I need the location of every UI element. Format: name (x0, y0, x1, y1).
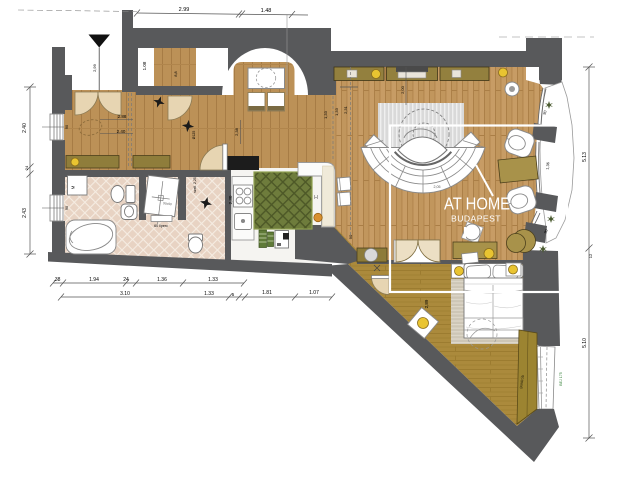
svg-text:1,36: 1,36 (546, 162, 551, 170)
svg-text:2.40: 2.40 (117, 129, 126, 134)
svg-text:.38: .38 (54, 277, 61, 283)
svg-text:AT HOME: AT HOME (444, 194, 510, 214)
svg-text:2,05: 2,05 (434, 185, 441, 189)
svg-text:2,99: 2,99 (92, 63, 97, 72)
svg-text:8,8: 8,8 (174, 71, 178, 76)
svg-text:2,31: 2,31 (343, 105, 348, 114)
svg-text:2,30: 2,30 (228, 195, 233, 204)
svg-text:M: M (71, 185, 76, 189)
svg-text:2.99: 2.99 (179, 7, 190, 13)
svg-text:2.88: 2.88 (118, 114, 127, 119)
svg-text:90: 90 (65, 125, 69, 129)
svg-text:1,33: 1,33 (323, 110, 328, 119)
svg-text:BUDAPEST: BUDAPEST (451, 215, 501, 224)
svg-text:1.48: 1.48 (261, 8, 272, 14)
svg-text:90: 90 (65, 206, 69, 210)
svg-text:szell. 2,25: szell. 2,25 (193, 177, 197, 193)
svg-text:24: 24 (123, 277, 129, 283)
svg-text:2.43: 2.43 (22, 208, 28, 218)
svg-text:1.94: 1.94 (89, 277, 99, 283)
svg-text:1.07: 1.07 (309, 290, 319, 296)
svg-text:24: 24 (24, 165, 29, 170)
svg-text:5.13: 5.13 (582, 152, 588, 162)
svg-text:H: H (314, 195, 318, 201)
svg-text:60 l/perc: 60 l/perc (154, 224, 168, 228)
svg-text:1.81: 1.81 (262, 290, 272, 296)
svg-text:1.33: 1.33 (208, 277, 218, 283)
svg-text:2,00: 2,00 (400, 85, 405, 94)
svg-text:3.10: 3.10 (120, 291, 130, 297)
svg-text:2,38: 2,38 (234, 127, 239, 136)
svg-text:1.36: 1.36 (157, 277, 167, 283)
svg-text:1,33: 1,33 (334, 107, 339, 116)
svg-text:90: 90 (348, 234, 353, 239)
svg-text:5.10: 5.10 (582, 338, 588, 348)
svg-text:1.33: 1.33 (204, 291, 214, 297)
svg-text:BEJ 175: BEJ 175 (559, 372, 563, 386)
svg-text:2.40: 2.40 (22, 123, 28, 133)
svg-text:1.08: 1.08 (142, 61, 147, 70)
svg-text:12: 12 (588, 253, 593, 258)
svg-text:2,89: 2,89 (424, 299, 429, 308)
svg-text:Ø125: Ø125 (192, 131, 196, 140)
